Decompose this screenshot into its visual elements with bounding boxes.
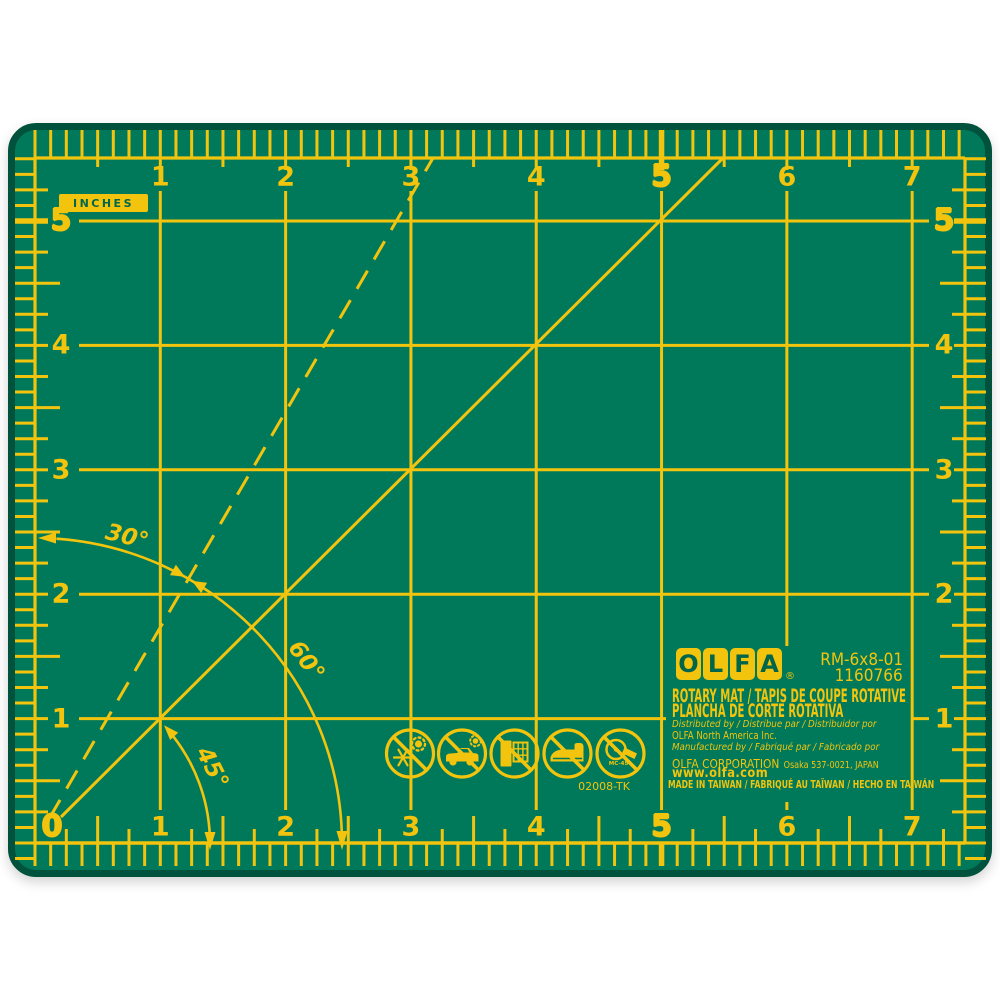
ruler-number: 7 [903, 814, 922, 841]
product-photo: MC-45 1234567 01234567 54321 54321 INCHE… [0, 0, 1000, 1000]
ruler-number: 4 [935, 332, 954, 359]
ruler-number: 3 [402, 814, 421, 841]
ruler-number: 2 [276, 164, 295, 191]
ruler-number: 5 [934, 206, 955, 236]
part-code: 02008-TK [560, 780, 630, 793]
olfa-logo-letter: F [730, 648, 755, 680]
ruler-number: 5 [651, 162, 672, 192]
ruler-number: 5 [651, 812, 672, 842]
ruler-number: 4 [527, 814, 546, 841]
ruler-number: 1 [151, 164, 170, 191]
ruler-number: 1 [935, 705, 954, 732]
ruler-number: 2 [935, 581, 954, 608]
ruler-number: 1 [151, 814, 170, 841]
no-hot-car-icon [439, 730, 486, 777]
ruler-number: 4 [527, 164, 546, 191]
ruler-number: 6 [777, 164, 796, 191]
ruler-number: 7 [903, 164, 922, 191]
olfa-logo-letter: L [703, 648, 728, 680]
no-window-sunlight-icon [491, 730, 538, 777]
ruler-number: 2 [276, 814, 295, 841]
olfa-logo-letter: A [757, 648, 782, 680]
manufactured-by-line: Manufactured by / Fabriqué par / Fabrica… [672, 742, 879, 753]
ruler-number: 2 [52, 581, 71, 608]
sun-icon [415, 740, 422, 747]
cutter-model-label: MC-45 [609, 761, 629, 767]
inches-label-badge: INCHES [59, 194, 148, 212]
manufacturer-address: Osaka 537-0021, JAPAN [784, 760, 879, 771]
made-in-line: MADE IN TAIWAN / FABRIQUÉ AU TAÏWAN / HE… [668, 778, 934, 791]
no-ironing-icon [544, 730, 591, 777]
olfa-logo-letter: O [676, 648, 701, 680]
distributed-by-line: Distributed by / Distribue par / Distrib… [672, 719, 876, 730]
ruler-number: 6 [777, 814, 796, 841]
care-icons-row: MC-45 [387, 730, 645, 777]
olfa-logo: OLFA [676, 648, 782, 680]
mat-markings: MC-45 [0, 0, 1000, 1000]
ruler-number: 3 [52, 456, 71, 483]
registered-trademark: ® [785, 671, 795, 682]
ruler-number: 3 [935, 456, 954, 483]
ruler-number: 4 [52, 332, 71, 359]
no-rotary-cutter-icon: MC-45 [597, 730, 644, 777]
ruler-number: 3 [402, 164, 421, 191]
ruler-number: 1 [52, 705, 71, 732]
item-number: 1160766 [835, 666, 903, 686]
sun-icon [473, 738, 479, 744]
ruler-number: 0 [42, 812, 63, 842]
distributor-name: OLFA North America Inc. [672, 730, 777, 742]
